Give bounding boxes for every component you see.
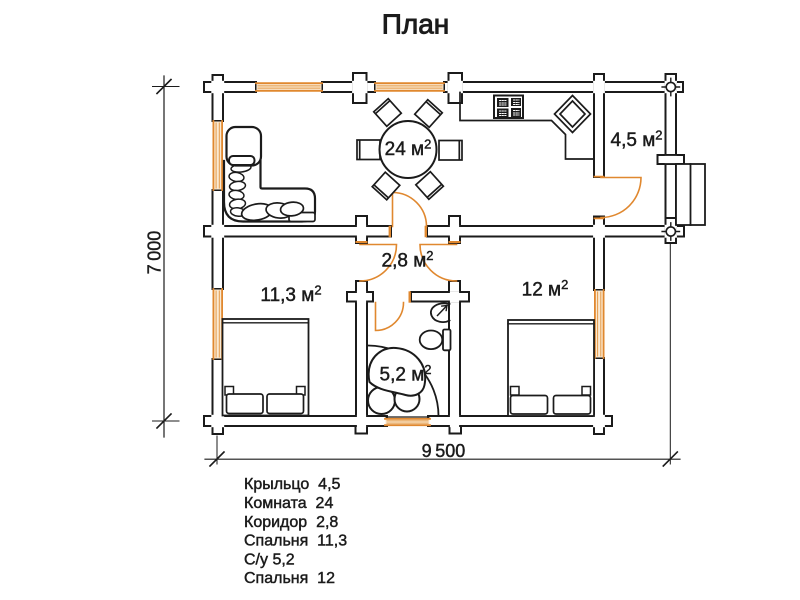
svg-text:Крыльцо 4,5: Крыльцо 4,5: [244, 476, 341, 493]
svg-text:4,5 м2: 4,5 м2: [611, 128, 663, 152]
svg-text:Комната 24: Комната 24: [244, 495, 333, 512]
svg-text:Коридор 2,8: Коридор 2,8: [244, 514, 338, 531]
svg-text:9 500: 9 500: [422, 441, 466, 461]
svg-text:2,8 м2: 2,8 м2: [382, 248, 434, 272]
svg-text:С/у 5,2: С/у 5,2: [244, 551, 295, 568]
svg-text:План: План: [382, 9, 450, 40]
svg-text:11,3 м2: 11,3 м2: [260, 283, 321, 307]
svg-text:5,2 м2: 5,2 м2: [380, 362, 432, 386]
svg-text:Спальня 11,3: Спальня 11,3: [244, 533, 347, 550]
svg-text:Спальня 12: Спальня 12: [244, 570, 335, 587]
svg-text:7 000: 7 000: [145, 231, 165, 275]
